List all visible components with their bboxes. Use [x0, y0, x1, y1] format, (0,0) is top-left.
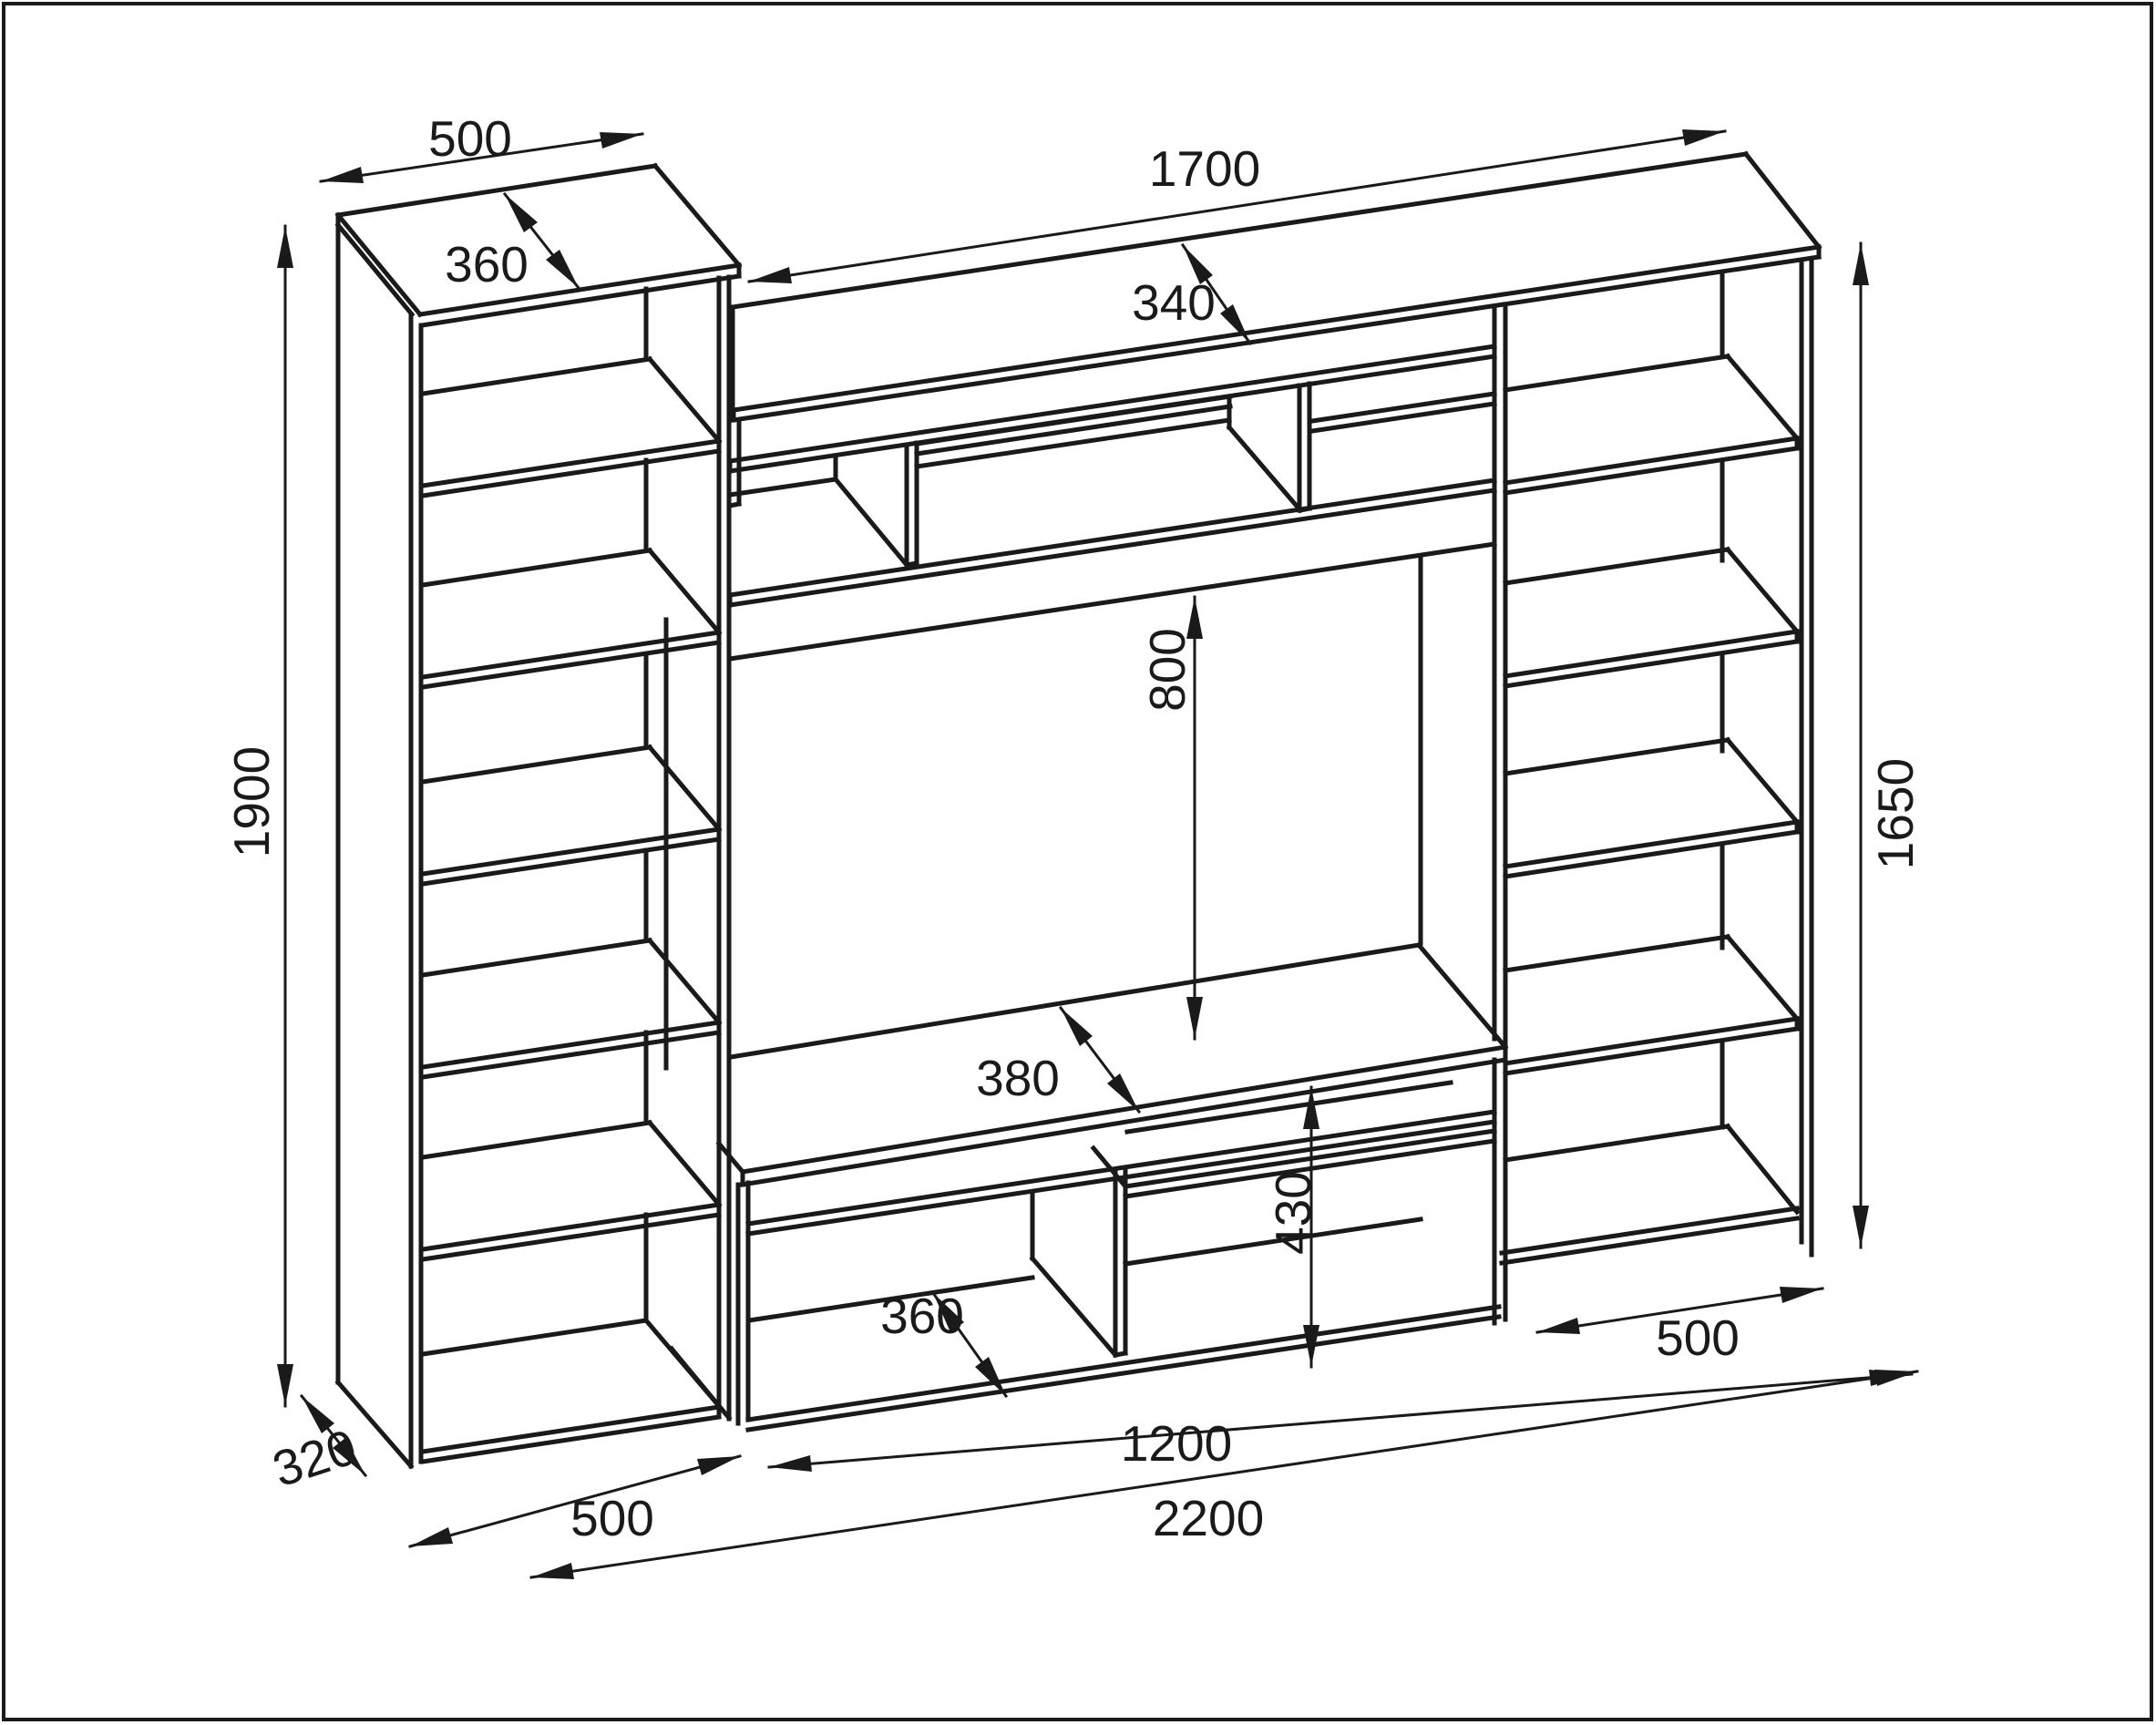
- svg-text:360: 360: [445, 236, 529, 293]
- svg-text:340: 340: [1132, 274, 1216, 331]
- svg-text:1650: 1650: [1867, 758, 1924, 869]
- svg-text:1200: 1200: [1121, 1415, 1232, 1472]
- svg-text:1900: 1900: [223, 746, 280, 857]
- svg-text:360: 360: [880, 1288, 964, 1344]
- svg-text:430: 430: [1265, 1171, 1321, 1255]
- svg-text:2200: 2200: [1153, 1490, 1264, 1546]
- svg-text:500: 500: [570, 1490, 654, 1546]
- svg-text:500: 500: [428, 110, 512, 167]
- svg-text:800: 800: [1139, 628, 1196, 712]
- svg-text:380: 380: [976, 1050, 1060, 1106]
- svg-text:500: 500: [1656, 1309, 1740, 1366]
- svg-text:1700: 1700: [1149, 140, 1260, 197]
